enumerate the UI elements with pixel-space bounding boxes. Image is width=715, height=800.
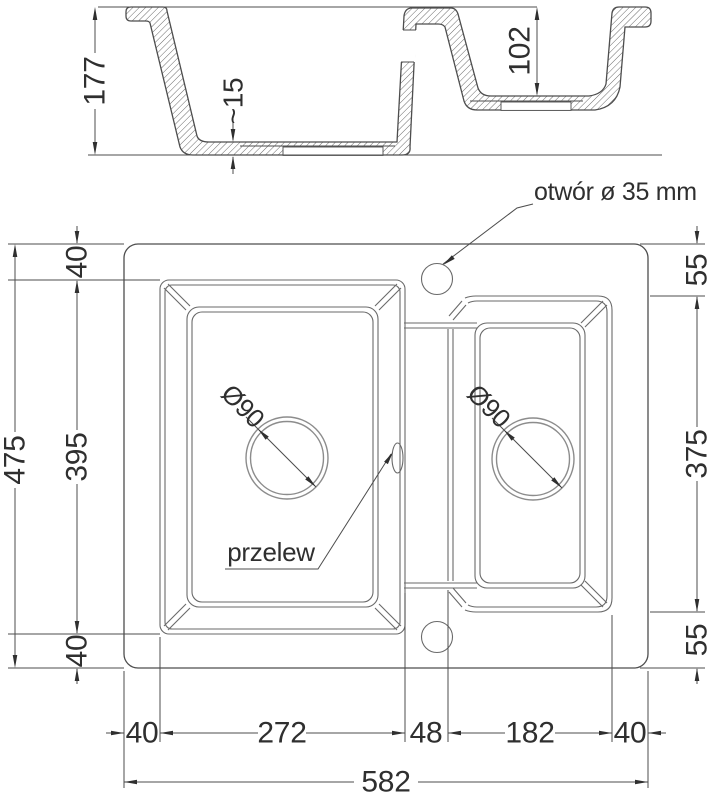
- dim-bottom-right-margin: 40: [614, 717, 647, 750]
- extension-lines: [8, 244, 705, 788]
- main-bowl-corner-bevels: [164, 284, 401, 630]
- small-bowl: [404, 296, 612, 612]
- plan-view: 475 40 395 40 55 375 55 40 272 48 182 40…: [0, 178, 714, 799]
- dim-left-bottom-margin: 40: [61, 635, 94, 668]
- small-bowl-left-edge-and-divider-ledge: [404, 323, 477, 588]
- tap-hole-top: [422, 264, 453, 295]
- main-drain-recess: [283, 147, 383, 155]
- dim-right-bottom-margin: 55: [681, 624, 714, 657]
- dim-small-bowl-depth: 102: [504, 26, 537, 75]
- overflow-hole-cutout: [400, 30, 417, 62]
- dim-total-width: 582: [361, 766, 410, 799]
- plan-arrowheads: [13, 231, 700, 784]
- small-drain-recess: [501, 102, 571, 110]
- dim-total-depth: 475: [0, 435, 32, 484]
- drawing-svg: 177 ~15 102: [0, 0, 715, 800]
- main-bowl-rim-inner: [165, 285, 400, 629]
- dim-small-bowl-width: 182: [505, 717, 554, 750]
- section-view: 177 ~15 102: [79, 7, 663, 174]
- small-bowl-rim-inner: [468, 301, 607, 607]
- dim-left-top-margin: 40: [61, 246, 94, 279]
- dim-main-bowl-depth: 177: [79, 56, 112, 105]
- leader-lines: [225, 204, 562, 569]
- sink-technical-drawing: 177 ~15 102: [0, 0, 715, 800]
- main-bowl-rim-outer: [160, 280, 405, 634]
- label-tap-hole: otwór ø 35 mm: [534, 178, 697, 206]
- main-bowl: [160, 280, 405, 634]
- small-bowl-rim-outer: [465, 296, 612, 612]
- dim-divider-width: 48: [410, 717, 443, 750]
- dim-bottom-thickness: ~15: [218, 78, 249, 125]
- dim-small-bowl-length: 375: [681, 429, 714, 478]
- label-overflow: przelew: [227, 537, 315, 567]
- dim-bottom-left-margin: 40: [126, 717, 159, 750]
- overflow-slot: [392, 443, 403, 473]
- dim-right-top-margin: 55: [681, 254, 714, 287]
- dim-main-bowl-length: 395: [61, 432, 94, 481]
- dim-main-bowl-width: 272: [257, 717, 306, 750]
- section-shell: [126, 7, 651, 155]
